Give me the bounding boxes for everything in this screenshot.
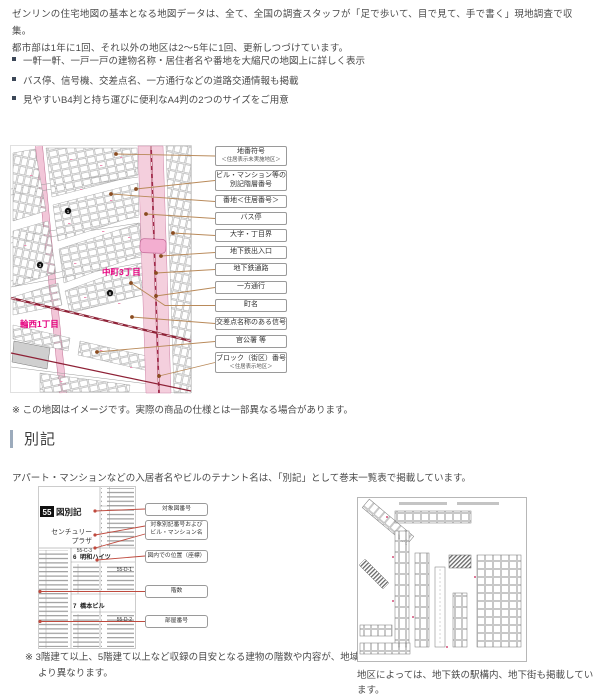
map-callout-town-name: 町名 bbox=[215, 299, 287, 312]
map-callout-subway-exit: 地下鉄出入口 bbox=[215, 246, 287, 259]
feature-text: 一軒一軒、一戸一戸の建物名称・居住者名や番地を大縮尺の地図上に詳しく表示 bbox=[23, 53, 365, 67]
bekki-table-image: 55 図別記 センチュリー プラザ 55-C-3 6 明和ハイツ 55-D-1 … bbox=[38, 486, 238, 654]
bekki-callout-bekki-number: 対象別記番号および ビル・マンション名 bbox=[145, 520, 208, 540]
section-header: 別記 bbox=[10, 428, 56, 449]
building-name-3: 橋本ビル bbox=[80, 602, 106, 610]
district-label-bottom: 輪西1丁目 bbox=[20, 319, 59, 329]
bekki-note: ※ 3階建て以上、5階建て以上など収録の目安となる建物の階数や内容が、地域により… bbox=[25, 650, 373, 682]
square-bullet-icon bbox=[12, 57, 16, 61]
intro-paragraph: ゼンリンの住宅地図の基本となる地図データは、全て、全国の調査スタッフが「足で歩い… bbox=[12, 6, 587, 57]
map-callout-chome-boundary: 大字・丁目界 bbox=[215, 229, 287, 242]
product-description-page: ゼンリンの住宅地図の基本となる地図データは、全て、全国の調査スタッフが「足で歩い… bbox=[0, 0, 601, 700]
building-name-1b: プラザ bbox=[72, 537, 93, 545]
section-header-bar bbox=[10, 430, 13, 448]
feature-list: 一軒一軒、一戸一戸の建物名称・居住者名や番地を大縮尺の地図上に詳しく表示 バス停… bbox=[12, 53, 365, 112]
district-label-center: 中町3丁目 bbox=[102, 267, 141, 277]
map-callout-signal: 交差点名称のある信号 bbox=[215, 317, 287, 330]
bekki-callout-map-number: 対象図番号 bbox=[145, 503, 208, 516]
list-item: バス停、信号機、交差点名、一方通行などの道路交通情報も掲載 bbox=[12, 73, 365, 87]
square-bullet-icon bbox=[12, 77, 16, 81]
map-disclaimer-note: ※ この地図はイメージです。実際の商品の仕様とは一部異なる場合があります。 bbox=[12, 402, 432, 416]
bekki-callout-position: 図内での位置（座標） bbox=[145, 550, 208, 563]
map-callout-bekki-kaisou: ビル・マンション等の 別記階層番号 bbox=[215, 170, 287, 191]
building-no-3: 7 bbox=[73, 603, 77, 610]
map-callout-bus-stop: バス停 bbox=[215, 212, 287, 225]
list-item: 見やすいB4判と持ち運びに便利なA4判の2つのサイズをご用意 bbox=[12, 92, 365, 106]
section-body: アパート・マンションなどの入居者名やビルのテナント名は、「別記」として巻末一覧表… bbox=[12, 470, 592, 484]
sample-map-figure: 中町3丁目 輪西1丁目 1 3 6 bbox=[10, 145, 310, 397]
map-callout-chiban: 地番符号 ＜住居表示未実施地区＞ bbox=[215, 146, 287, 166]
map-callout-banchi: 番地＜住居番号＞ bbox=[215, 195, 287, 208]
bekki-sample-figure: 55 図別記 センチュリー プラザ 55-C-3 6 明和ハイツ 55-D-1 … bbox=[38, 486, 238, 654]
map-callout-public-office: 官公署 等 bbox=[215, 335, 287, 348]
feature-text: バス停、信号機、交差点名、一方通行などの道路交通情報も掲載 bbox=[23, 73, 299, 87]
bekki-callout-room-number: 部屋番号 bbox=[145, 615, 208, 628]
building-code-3: 55-D-2 bbox=[117, 617, 133, 623]
underground-caption: 地区によっては、地下鉄の駅構内、地下街も掲載しています。 bbox=[357, 668, 597, 698]
bekki-callout-floors: 階数 bbox=[145, 585, 208, 598]
intro-line-1: ゼンリンの住宅地図の基本となる地図データは、全て、全国の調査スタッフが「足で歩い… bbox=[12, 6, 587, 40]
bekki-page-label: 図別記 bbox=[56, 507, 82, 517]
map-callout-block-number: ブロック（街区）番号 ＜住居表示地区＞ bbox=[215, 352, 287, 373]
feature-text: 見やすいB4判と持ち運びに便利なA4判の2つのサイズをご用意 bbox=[23, 92, 289, 106]
building-name-1a: センチュリー bbox=[51, 528, 92, 536]
list-item: 一軒一軒、一戸一戸の建物名称・居住者名や番地を大縮尺の地図上に詳しく表示 bbox=[12, 53, 365, 67]
bekki-page-number: 55 bbox=[43, 508, 52, 517]
underground-map-figure bbox=[357, 497, 527, 662]
map-callout-one-way: 一方通行 bbox=[215, 281, 287, 294]
building-code-2: 55-D-1 bbox=[117, 567, 133, 573]
map-callout-subway-passage: 地下鉄通路 bbox=[215, 263, 287, 276]
section-title: 別記 bbox=[24, 428, 56, 449]
square-bullet-icon bbox=[12, 96, 16, 100]
underground-map-image bbox=[357, 497, 527, 662]
building-no-2: 6 bbox=[73, 554, 77, 561]
